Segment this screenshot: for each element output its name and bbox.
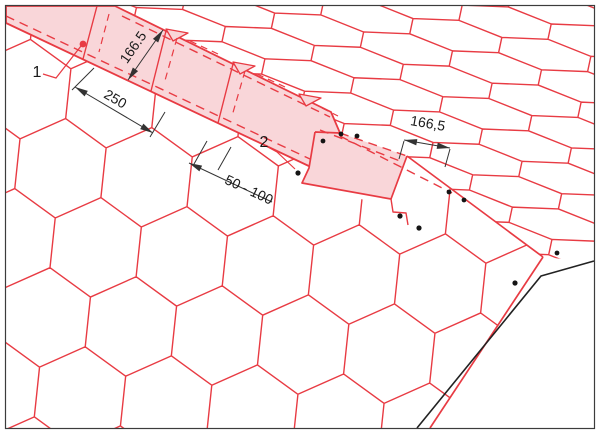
fastener-dot <box>339 132 344 137</box>
fastener-dot <box>295 170 300 175</box>
callout-1-label: 1 <box>33 64 42 81</box>
fastener-dot <box>416 225 421 230</box>
fastener-dot <box>512 280 517 285</box>
callout-2-label: 2 <box>260 134 269 151</box>
roof-ridge-detail-drawing: 166.5 250 50 - 100 166,5 1 2 <box>0 0 600 434</box>
fastener-dot <box>321 139 326 144</box>
fastener-dot <box>462 198 467 203</box>
fastener-dot <box>555 251 560 256</box>
fastener-dot <box>397 213 402 218</box>
fastener-dot <box>355 134 360 139</box>
fastener-dot <box>447 190 452 195</box>
